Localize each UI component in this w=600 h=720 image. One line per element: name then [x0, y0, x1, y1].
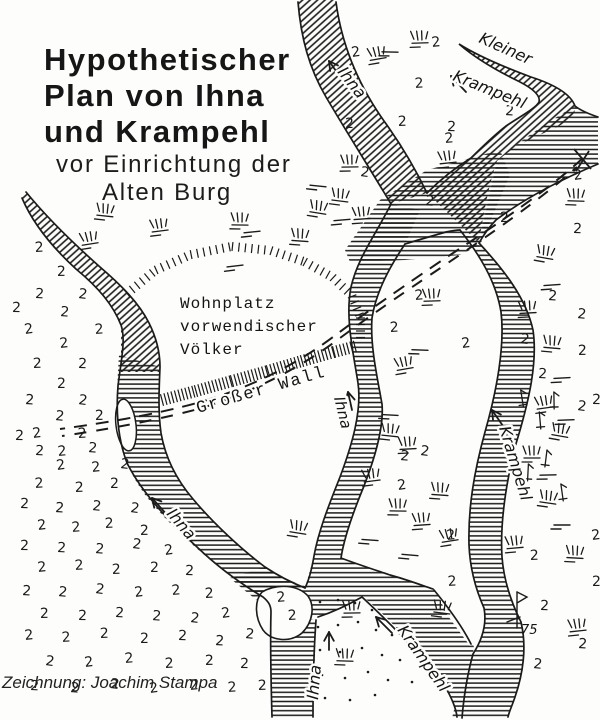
meadow-dash-symbol — [551, 378, 570, 383]
marsh-symbol: 2 — [425, 193, 436, 210]
marsh-symbol: 2 — [55, 408, 66, 425]
marsh-symbol: 2 — [58, 584, 69, 601]
marsh-symbol: 2 — [124, 650, 134, 667]
marsh-symbol: 2 — [287, 608, 297, 624]
label-ihna-mid: Ihna — [330, 395, 355, 431]
drawing-credit: Zeichnung: Joachim Stampa — [1, 673, 217, 692]
title-line-1: Hypothetischer — [44, 42, 291, 77]
dot-symbol — [319, 649, 322, 652]
title-line-2: Plan von Ihna — [44, 78, 265, 113]
marsh-symbol: 2 — [576, 398, 587, 415]
reed-symbol — [535, 412, 545, 430]
dot-symbol — [367, 671, 370, 674]
marsh-symbol: 2 — [78, 286, 89, 303]
marsh-symbol: 2 — [23, 321, 34, 338]
marsh-symbol: 2 — [94, 321, 104, 338]
dot-symbol — [375, 629, 378, 632]
marsh-symbol: 2 — [220, 605, 231, 622]
marsh-symbol: 2 — [35, 443, 45, 459]
grass-tuft-symbol — [411, 512, 430, 529]
dot-symbol — [319, 601, 322, 604]
marsh-symbol: 2 — [185, 563, 194, 579]
marsh-symbol: 2 — [389, 320, 399, 336]
marsh-symbol: 2 — [205, 653, 214, 669]
marsh-symbol: 2 — [110, 476, 119, 492]
marsh-symbol: 2 — [22, 583, 32, 600]
dot-symbol — [339, 651, 342, 654]
marsh-symbol: 2 — [577, 306, 588, 323]
dot-symbol — [357, 621, 360, 624]
marsh-symbol: 2 — [115, 605, 125, 621]
grass-tuft-symbol — [329, 188, 349, 206]
grass-tuft-symbol — [393, 356, 414, 375]
meadow-dash-symbol — [359, 539, 378, 544]
marsh-symbol: 2 — [578, 636, 588, 653]
meadow-dash-symbol — [551, 525, 570, 529]
marsh-symbol: 2 — [40, 606, 49, 622]
marsh-symbol: 2 — [12, 300, 21, 316]
marsh-symbol: 2 — [34, 240, 44, 256]
marsh-symbol: 2 — [461, 335, 472, 352]
marsh-symbol: 2 — [61, 629, 71, 646]
grass-tuft-symbol — [534, 395, 554, 413]
grass-tuft-symbol — [78, 231, 98, 250]
marsh-symbol: 2 — [20, 496, 29, 512]
grass-tuft-symbol — [504, 535, 523, 553]
dot-symbol — [317, 626, 320, 629]
dot-symbol — [399, 659, 402, 662]
title-line-5: Alten Burg — [102, 179, 232, 206]
marsh-symbol: 2 — [227, 679, 237, 696]
marsh-symbol: 2 — [140, 631, 149, 647]
marsh-symbol: 2 — [75, 480, 84, 496]
marsh-symbol: 2 — [164, 656, 174, 672]
marsh-symbol: 2 — [538, 366, 548, 382]
dot-symbol — [324, 697, 327, 700]
dot-symbol — [381, 654, 384, 657]
marsh-symbol: 2 — [240, 656, 249, 672]
marsh-symbol: 2 — [37, 517, 48, 534]
label-ihna-bottom: Ihna — [303, 664, 325, 700]
marsh-symbol: 2 — [20, 538, 29, 554]
marsh-symbol: 2 — [573, 221, 582, 237]
marsh-symbol: 2 — [533, 656, 544, 673]
marsh-symbol: 2 — [92, 498, 103, 515]
marsh-symbol: 2 — [414, 75, 424, 92]
meadow-dash-symbol — [379, 52, 398, 56]
reed-symbol — [557, 483, 568, 501]
marsh-symbol: 2 — [78, 356, 87, 372]
grass-tuft-symbol — [430, 482, 449, 499]
meadow-dash-symbol — [224, 265, 243, 271]
dot-symbol — [371, 609, 374, 612]
marsh-symbol: 2 — [71, 519, 81, 536]
grass-tuft-symbol — [340, 155, 358, 171]
marsh-symbol: 2 — [33, 356, 42, 372]
grass-tuft-symbol — [410, 31, 429, 48]
dot-symbol — [391, 634, 394, 637]
marsh-symbol: 2 — [171, 582, 181, 599]
marsh-symbol: 2 — [420, 443, 431, 460]
marsh-symbol: 2 — [163, 542, 174, 559]
marsh-symbol: 2 — [132, 536, 143, 553]
marsh-symbol: 2 — [431, 34, 442, 51]
marsh-symbol: 2 — [400, 448, 410, 465]
marsh-symbol: 2 — [24, 627, 35, 644]
marsh-symbol: 2 — [55, 457, 66, 474]
grass-tuft-symbol — [230, 213, 248, 229]
marsh-symbol: 2 — [500, 210, 509, 226]
marsh-symbol: 2 — [94, 581, 105, 598]
grass-tuft-symbol — [537, 490, 557, 508]
grass-tuft-symbol — [542, 335, 561, 353]
marsh-symbol: 2 — [91, 459, 102, 476]
label-wohnplatz-2: vorwendischer — [180, 318, 318, 336]
dot-symbol — [344, 677, 347, 680]
marsh-symbol: 2 — [591, 527, 600, 544]
marsh-symbol: 2 — [245, 626, 256, 643]
grass-tuft-symbol — [422, 289, 441, 306]
marsh-symbol: 2 — [178, 628, 187, 644]
marsh-symbol: 2 — [530, 548, 539, 564]
grass-tuft-symbol — [567, 618, 587, 636]
meadow-dash-symbol — [331, 219, 350, 225]
dot-symbol — [354, 602, 357, 605]
marsh-symbol: 2 — [112, 562, 121, 578]
marsh-symbol: 2 — [32, 425, 43, 442]
marsh-symbol: 2 — [74, 557, 84, 574]
marsh-symbol: 2 — [57, 376, 66, 392]
meadow-dash-symbol — [307, 185, 326, 191]
meadow-dash-symbol — [555, 420, 574, 425]
marsh-symbol: 2 — [60, 304, 70, 321]
marsh-symbol: 2 — [359, 164, 370, 181]
marsh-symbol: 2 — [77, 426, 87, 442]
grass-tuft-symbol — [307, 200, 327, 219]
marsh-symbol: 2 — [447, 573, 457, 590]
meadow-dash-symbol — [241, 231, 260, 237]
dot-symbol — [361, 647, 364, 650]
signature-year: 75 — [521, 623, 538, 638]
map-drawing: 2222222222222222222222222222222222222222… — [0, 0, 600, 720]
marsh-symbol: 2 — [57, 540, 67, 556]
marsh-symbol: 2 — [345, 116, 354, 132]
marsh-symbol: 2 — [120, 456, 131, 473]
marsh-symbol: 2 — [592, 392, 600, 408]
meadow-dash-symbol — [409, 350, 428, 355]
grass-tuft-symbol — [380, 423, 400, 441]
grass-tuft-symbol — [290, 228, 309, 245]
marsh-symbol: 2 — [34, 475, 44, 492]
grass-tuft-symbol — [388, 499, 406, 515]
reed-symbol — [541, 450, 552, 468]
grass-tuft-symbol — [566, 189, 585, 206]
marsh-symbol: 2 — [258, 678, 267, 694]
marsh-symbol: 2 — [190, 610, 201, 627]
label-wohnplatz-1: Wohnplatz — [180, 295, 275, 313]
marsh-symbol: 2 — [95, 541, 105, 558]
dot-symbol — [387, 679, 390, 682]
marsh-symbol: 2 — [44, 653, 55, 670]
marsh-symbol: 2 — [59, 335, 70, 352]
marsh-symbol: 2 — [104, 516, 114, 532]
meadow-dash-symbol — [537, 475, 556, 479]
marsh-symbol: 2 — [215, 633, 225, 650]
grass-tuft-symbol — [549, 422, 570, 441]
map-page: 2222222222222222222222222222222222222222… — [0, 0, 600, 720]
marsh-symbol: 2 — [578, 343, 587, 359]
grass-tuft-symbol — [149, 218, 169, 236]
marsh-symbol: 2 — [129, 500, 140, 517]
dot-symbol — [374, 694, 377, 697]
meadow-dash-symbol — [399, 554, 418, 560]
marsh-symbol: 2 — [150, 560, 159, 576]
marsh-symbol: 2 — [276, 589, 286, 606]
marsh-symbol: 2 — [444, 130, 454, 147]
marsh-symbol: 2 — [398, 114, 407, 130]
marsh-symbol: 2 — [84, 654, 95, 671]
marsh-symbol: 2 — [15, 428, 24, 444]
marsh-symbol: 2 — [35, 286, 45, 302]
marsh-symbol: 2 — [396, 477, 407, 494]
marsh-symbol: 2 — [548, 288, 558, 305]
grass-tuft-symbol — [287, 520, 307, 539]
marsh-symbol: 2 — [77, 392, 88, 409]
marsh-symbol: 2 — [55, 500, 65, 517]
marsh-symbol: 2 — [204, 586, 214, 602]
marsh-symbol: 2 — [25, 392, 35, 409]
dot-symbol — [337, 624, 340, 627]
marsh-symbol: 2 — [78, 608, 87, 624]
marsh-symbol: 2 — [350, 44, 361, 61]
marsh-symbol: 2 — [88, 440, 98, 457]
marsh-symbol: 2 — [592, 574, 600, 590]
dot-symbol — [337, 599, 340, 602]
marsh-symbol: 2 — [152, 608, 162, 625]
marsh-symbol: 2 — [37, 559, 48, 576]
title-line-3: und Krampehl — [44, 114, 270, 149]
grass-tuft-symbol — [534, 244, 555, 263]
marsh-symbol: 2 — [134, 584, 145, 601]
dot-symbol — [349, 699, 352, 702]
label-wohnplatz-3: Völker — [180, 341, 244, 359]
title-line-4: vor Einrichtung der — [56, 151, 292, 178]
marsh-symbol: 2 — [95, 408, 104, 424]
marsh-symbol: 2 — [100, 626, 109, 642]
grass-tuft-symbol — [565, 545, 584, 562]
marsh-symbol: 2 — [57, 264, 66, 280]
dot-symbol — [411, 681, 414, 684]
marsh-symbol: 2 — [540, 598, 549, 614]
